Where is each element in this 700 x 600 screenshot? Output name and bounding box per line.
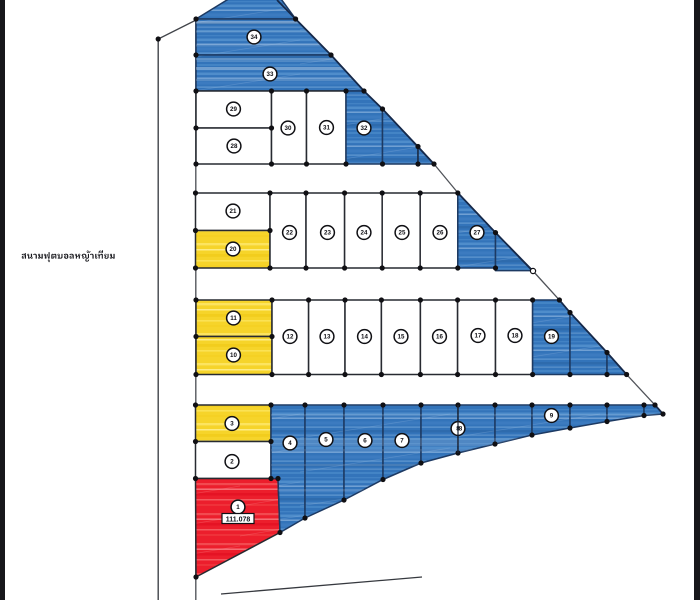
svg-text:4: 4	[288, 440, 292, 447]
svg-text:15: 15	[398, 334, 405, 341]
svg-text:32: 32	[361, 125, 368, 132]
svg-text:30: 30	[285, 125, 292, 132]
svg-text:26: 26	[437, 230, 444, 237]
svg-text:22: 22	[286, 230, 293, 237]
svg-text:27: 27	[474, 230, 481, 237]
svg-text:25: 25	[399, 230, 406, 237]
svg-text:2: 2	[230, 459, 234, 466]
svg-text:11: 11	[230, 315, 237, 322]
svg-text:9: 9	[550, 413, 554, 420]
svg-text:16: 16	[436, 334, 443, 341]
svg-text:14: 14	[361, 334, 368, 341]
svg-text:111.078: 111.078	[226, 517, 251, 524]
svg-text:17: 17	[475, 333, 482, 340]
svg-text:29: 29	[230, 106, 237, 113]
svg-text:8: 8	[459, 426, 463, 433]
svg-text:1: 1	[236, 504, 240, 511]
svg-text:21: 21	[230, 208, 237, 215]
svg-text:31: 31	[323, 125, 330, 132]
svg-text:33: 33	[267, 71, 274, 78]
svg-text:13: 13	[324, 334, 331, 341]
svg-text:3: 3	[230, 421, 234, 428]
svg-text:5: 5	[324, 437, 328, 444]
svg-text:19: 19	[548, 334, 555, 341]
svg-text:23: 23	[324, 230, 331, 237]
svg-text:20: 20	[230, 246, 237, 253]
svg-text:12: 12	[287, 334, 294, 341]
svg-text:18: 18	[512, 333, 519, 340]
svg-text:10: 10	[230, 352, 237, 359]
svg-text:24: 24	[361, 230, 368, 237]
svg-text:34: 34	[251, 34, 258, 41]
svg-text:28: 28	[231, 143, 238, 150]
svg-text:7: 7	[400, 438, 404, 445]
svg-text:6: 6	[363, 438, 367, 445]
